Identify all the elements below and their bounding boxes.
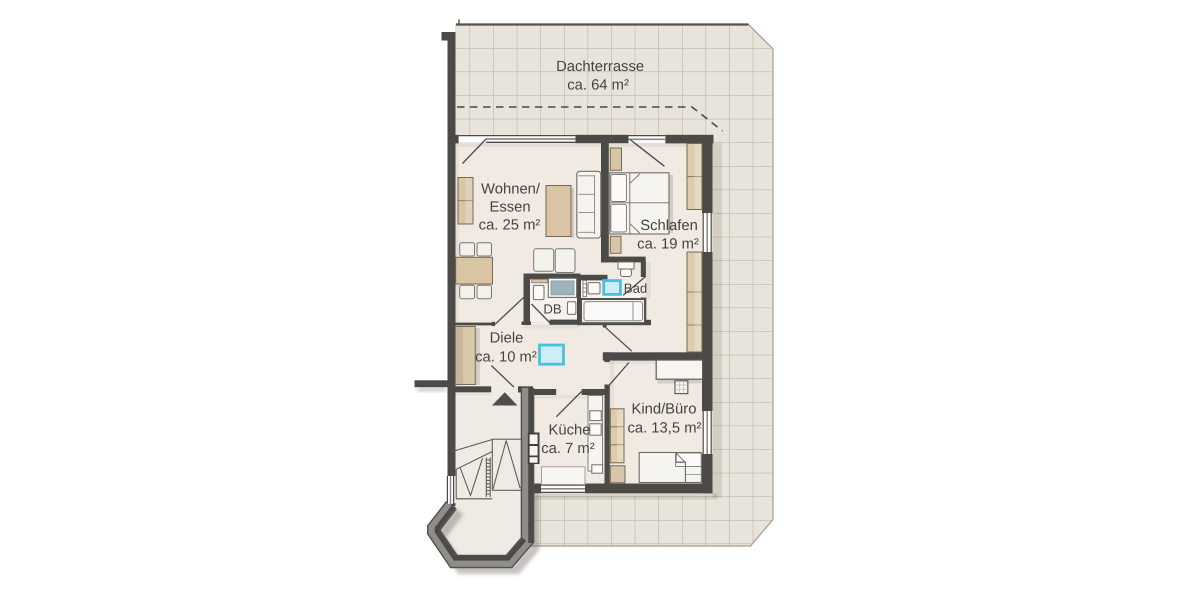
svg-text:Küche: Küche <box>548 422 590 438</box>
svg-text:Wohnen/: Wohnen/ <box>481 181 541 197</box>
svg-text:Essen: Essen <box>489 199 530 215</box>
svg-text:Diele: Diele <box>490 330 524 346</box>
svg-text:ca. 19 m²: ca. 19 m² <box>637 237 699 253</box>
svg-text:ca. 25 m²: ca. 25 m² <box>479 217 541 233</box>
svg-text:ca. 7 m²: ca. 7 m² <box>541 441 595 457</box>
svg-text:Kind/Büro: Kind/Büro <box>631 402 696 418</box>
svg-text:ca. 10 m²: ca. 10 m² <box>475 349 537 365</box>
svg-text:Schlafen: Schlafen <box>640 218 698 234</box>
svg-text:Dachterrasse: Dachterrasse <box>556 59 644 75</box>
svg-text:Bad: Bad <box>624 281 647 296</box>
svg-text:ca. 13,5 m²: ca. 13,5 m² <box>627 421 701 437</box>
svg-text:DB: DB <box>543 301 562 316</box>
svg-text:ca. 64 m²: ca. 64 m² <box>567 77 629 93</box>
